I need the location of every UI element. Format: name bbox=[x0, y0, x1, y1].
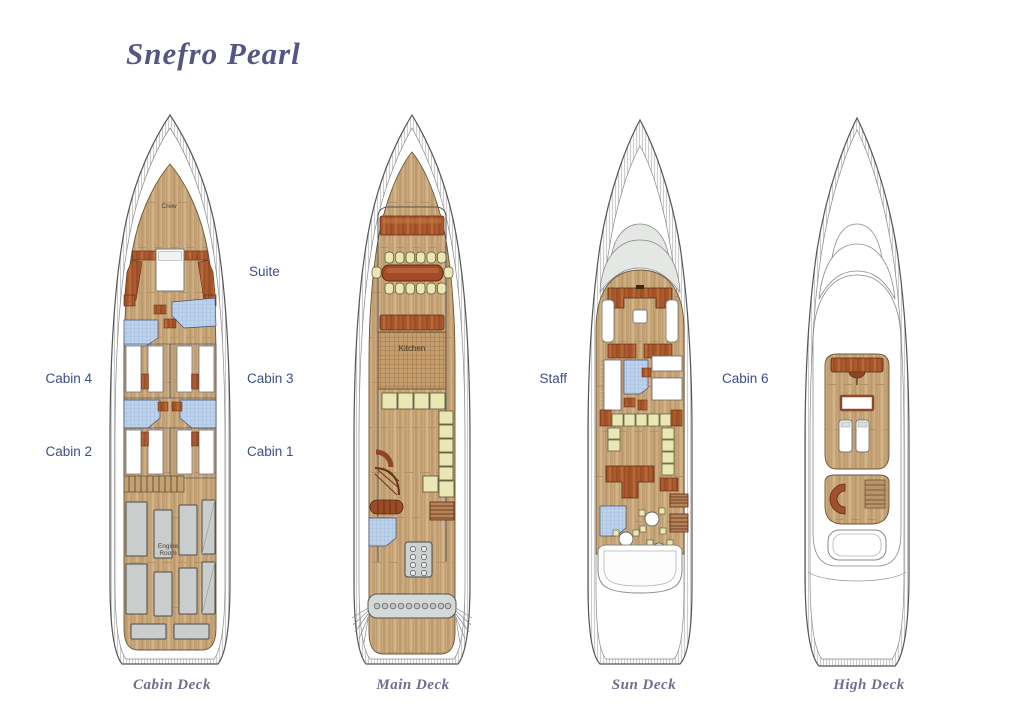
caption-main-deck: Main Deck bbox=[343, 677, 483, 694]
tank-rack bbox=[405, 542, 432, 577]
main-deck-plan bbox=[340, 112, 484, 674]
engine-room-label-line2: Room bbox=[159, 550, 176, 557]
label-cabin4: Cabin 4 bbox=[28, 371, 92, 386]
caption-high-deck: High Deck bbox=[799, 677, 939, 694]
deck-plan-page: Snefro Pearl bbox=[0, 0, 1024, 724]
suite-bed bbox=[156, 249, 184, 291]
engine-room-label-line1: Engine bbox=[158, 543, 178, 550]
high-deck-plan bbox=[795, 114, 921, 674]
bar-counter bbox=[380, 216, 444, 235]
label-staff: Staff bbox=[503, 371, 567, 386]
caption-cabin-deck: Cabin Deck bbox=[102, 677, 242, 694]
kitchen-area bbox=[378, 332, 446, 389]
galley-counter bbox=[380, 315, 444, 330]
flybridge-table bbox=[841, 396, 873, 410]
label-cabin2: Cabin 2 bbox=[28, 444, 92, 459]
kitchen-label: Kitchen bbox=[382, 344, 442, 353]
stairs-down bbox=[865, 480, 885, 508]
label-cabin1: Cabin 1 bbox=[247, 444, 294, 459]
caption-sun-deck: Sun Deck bbox=[574, 677, 714, 694]
aft-cabinet bbox=[660, 478, 678, 491]
label-cabin6: Cabin 6 bbox=[722, 371, 769, 386]
cabin-row-forward bbox=[124, 344, 216, 398]
dining-table bbox=[382, 265, 443, 281]
stern-bench bbox=[598, 545, 682, 593]
aft-stairs bbox=[430, 502, 454, 520]
stern-bench bbox=[828, 530, 886, 560]
engine-room-label: Engine Room bbox=[138, 543, 198, 557]
cabin-deck-plan bbox=[98, 112, 242, 674]
sun-deck-plan bbox=[578, 116, 704, 674]
flybridge bbox=[825, 354, 889, 469]
aft-flybridge bbox=[825, 475, 889, 524]
page-title: Snefro Pearl bbox=[126, 36, 301, 72]
stairs-strip bbox=[124, 476, 184, 492]
cabin-row-aft bbox=[124, 428, 216, 478]
crew-room-label: Crew bbox=[139, 203, 199, 210]
label-cabin3: Cabin 3 bbox=[247, 371, 294, 386]
label-suite: Suite bbox=[249, 264, 280, 279]
